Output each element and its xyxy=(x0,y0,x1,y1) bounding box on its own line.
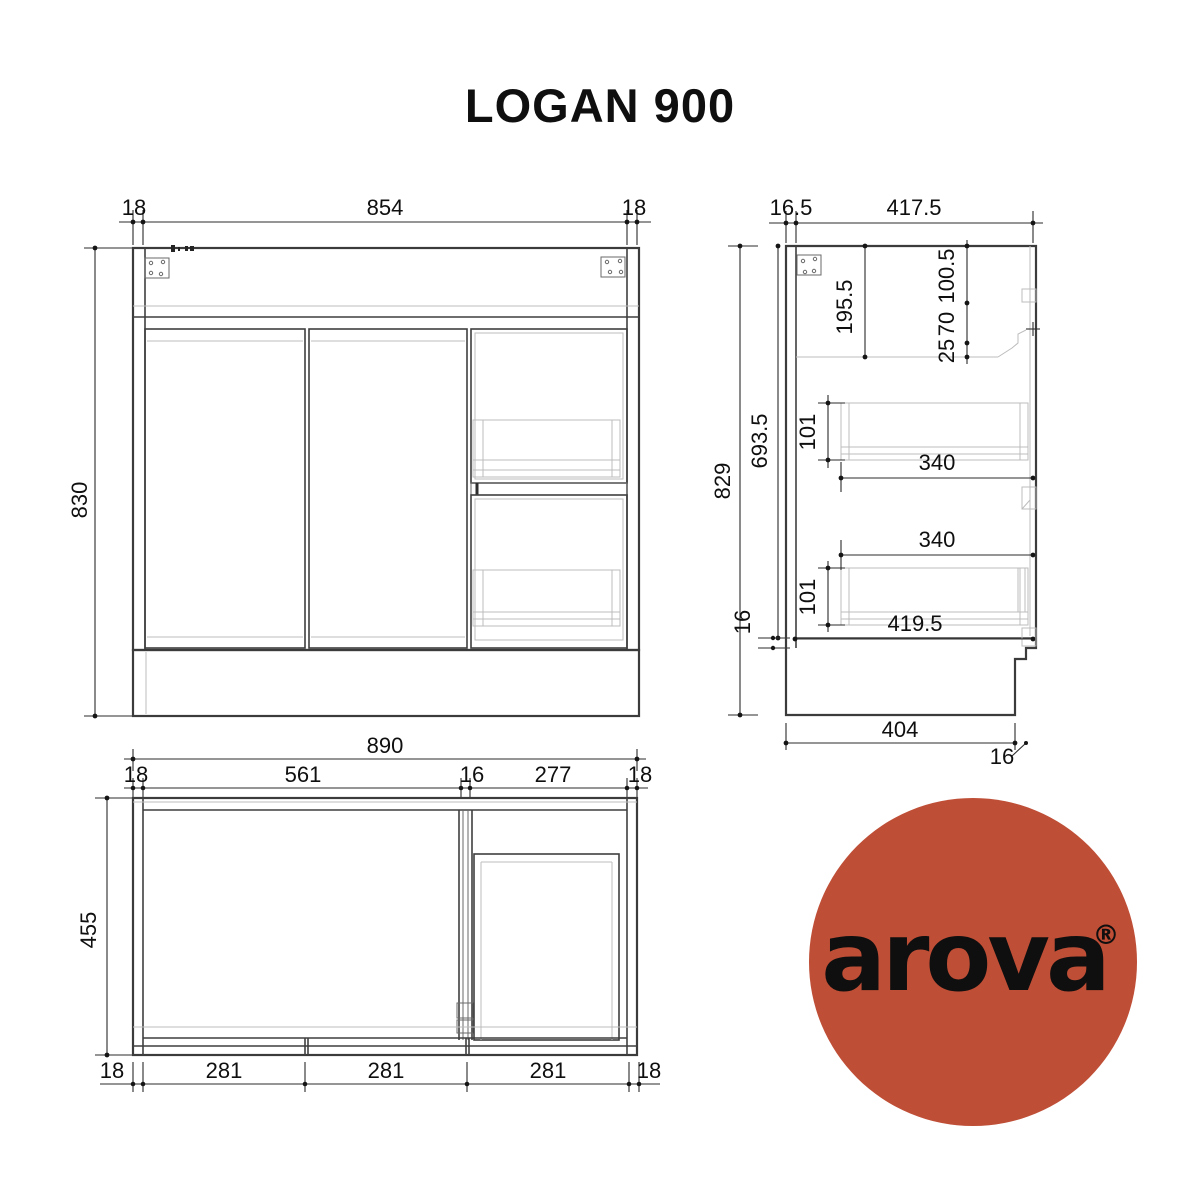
dim-side-front-rail: 100.5 xyxy=(934,248,959,303)
front-view-drawing: 18 854 18 830 xyxy=(67,195,651,718)
dim-side-overall-height: 829 xyxy=(710,463,735,500)
dim-side-drawer-bottom-depth: 340 xyxy=(919,527,956,552)
dim-side-rail-gap-upper: 70 xyxy=(934,312,959,336)
dim-plan-bay-3: 281 xyxy=(530,1058,567,1083)
plan-bottom-dimensions: 18 281 281 281 18 xyxy=(100,1058,661,1092)
side-view-drawing: 16.5 417.5 829 693.5 16 xyxy=(710,195,1043,769)
page-title: LOGAN 900 xyxy=(465,79,735,132)
dim-plan-right-panel: 18 xyxy=(628,762,652,787)
vanity-technical-drawing: LOGAN 900 18 854 18 830 xyxy=(0,0,1200,1200)
side-left-dimensions: 829 693.5 16 xyxy=(710,244,790,718)
dim-front-top-width: 854 xyxy=(367,195,404,220)
plan-drawer-box xyxy=(474,854,619,1040)
side-cabinet xyxy=(786,246,1036,715)
dim-plan-divider: 16 xyxy=(460,762,484,787)
front-top-dimensions: 18 854 18 xyxy=(119,195,651,245)
dim-plan-bay-1: 281 xyxy=(206,1058,243,1083)
front-left-bracket xyxy=(145,258,169,278)
front-right-bracket xyxy=(601,257,625,277)
dim-side-drawer-bottom-height: 101 xyxy=(795,579,820,616)
dim-side-drawer-top-depth: 340 xyxy=(919,450,956,475)
plan-depth-dimension: 455 xyxy=(76,796,133,1058)
front-carcass xyxy=(133,248,639,650)
dim-side-top-depth: 417.5 xyxy=(886,195,941,220)
front-door-left xyxy=(145,329,305,648)
dim-plan-left-panel: 18 xyxy=(124,762,148,787)
side-bottom-dimensions: 404 16 xyxy=(784,717,1028,769)
plan-view-drawing: 890 18 561 16 277 18 455 xyxy=(76,733,661,1092)
logo-registered-icon: ® xyxy=(1093,920,1120,951)
front-kickboard xyxy=(133,650,639,716)
plan-cabinet xyxy=(133,798,637,1055)
dim-side-top-section: 195.5 xyxy=(832,279,857,334)
dim-plan-bay-2: 281 xyxy=(368,1058,405,1083)
plan-carcass xyxy=(133,798,637,1055)
front-drawer-box-top xyxy=(473,420,620,477)
side-interior-dimensions: 195.5 100.5 70 25 101 340 340 xyxy=(793,240,1040,641)
dim-side-kick-recess: 16 xyxy=(990,744,1014,769)
front-drawer-bottom xyxy=(471,495,627,648)
dim-plan-door-bay: 561 xyxy=(285,762,322,787)
dim-plan-overall-depth: 455 xyxy=(76,912,101,949)
drawing-sheet: LOGAN 900 18 854 18 830 xyxy=(0,0,1200,1200)
dim-front-overall-height: 830 xyxy=(67,482,92,519)
side-carcass-outline xyxy=(786,246,1036,715)
dim-plan-bottom-right-panel: 18 xyxy=(637,1058,661,1083)
arova-logo: arova ® xyxy=(809,798,1137,1126)
dim-plan-drawer-bay: 277 xyxy=(535,762,572,787)
dim-plan-overall-width: 890 xyxy=(367,733,404,758)
front-height-dimension: 830 xyxy=(67,246,140,719)
plan-top-dimensions: 890 18 561 16 277 18 xyxy=(124,733,652,798)
dim-front-top-left-panel: 18 xyxy=(122,195,146,220)
front-drawer-rail xyxy=(471,483,627,495)
dim-front-top-right-panel: 18 xyxy=(622,195,646,220)
plan-divider xyxy=(457,810,473,1040)
dim-plan-bottom-left-panel: 18 xyxy=(100,1058,124,1083)
side-top-dimensions: 16.5 417.5 xyxy=(769,195,1043,243)
front-door-right xyxy=(309,329,467,648)
dim-side-bottom-panel: 16 xyxy=(730,610,755,634)
front-cabinet xyxy=(133,245,639,716)
side-bracket xyxy=(797,255,821,275)
dim-side-kick-depth: 404 xyxy=(882,717,919,742)
plan-front-edge xyxy=(133,1027,637,1055)
logo-brand-text: arova xyxy=(821,901,1106,1013)
front-drawer-box-bottom xyxy=(473,570,620,626)
dim-side-interior-depth: 419.5 xyxy=(887,611,942,636)
dim-side-drawer-top-height: 101 xyxy=(795,414,820,451)
dim-side-interior-height: 693.5 xyxy=(747,413,772,468)
dim-side-back-panel: 16.5 xyxy=(770,195,813,220)
dim-side-rail-gap-lower: 25 xyxy=(934,339,959,363)
